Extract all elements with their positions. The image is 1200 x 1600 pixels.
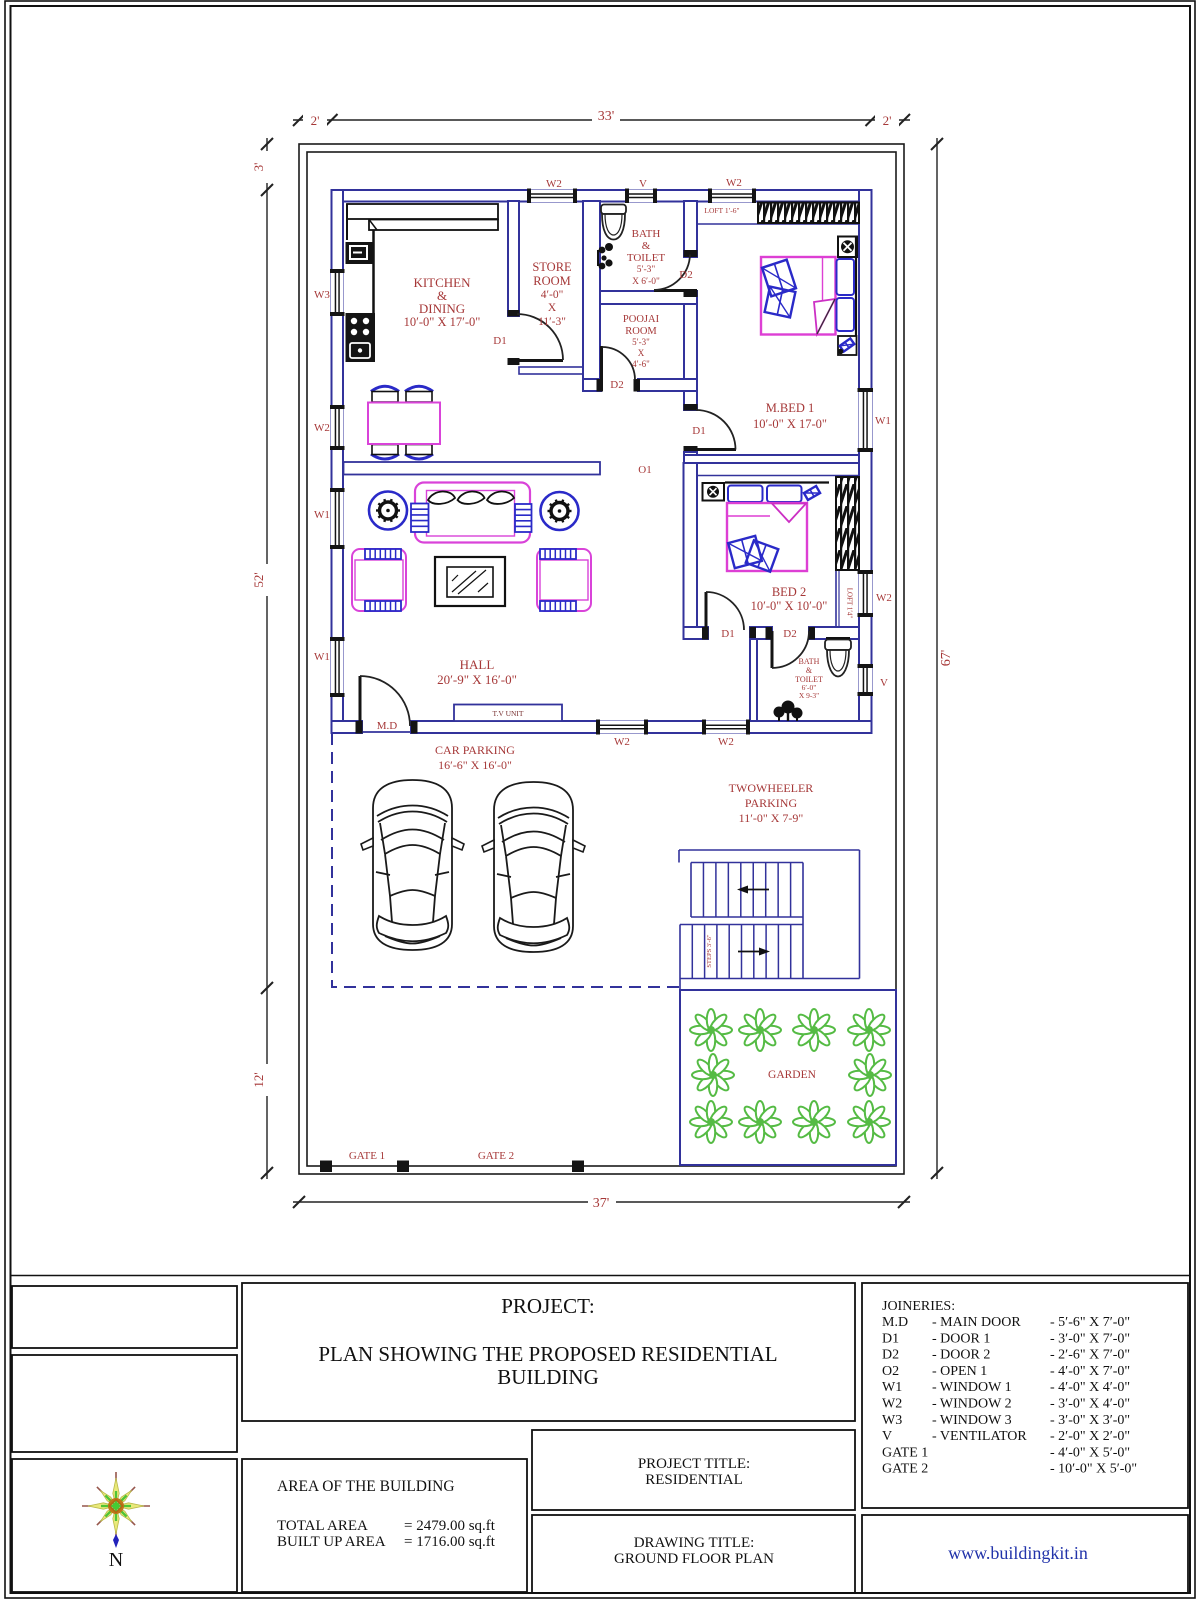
svg-text:16′-6" X 16′-0": 16′-6" X 16′-0": [438, 758, 512, 772]
svg-text:D2: D2: [679, 269, 692, 281]
svg-text:D1: D1: [493, 335, 506, 347]
svg-text:PLAN SHOWING THE PROPOSED RESI: PLAN SHOWING THE PROPOSED RESIDENTIAL: [318, 1342, 777, 1366]
svg-text:X 6′-0": X 6′-0": [632, 277, 660, 287]
svg-text:GATE 1: GATE 1: [349, 1150, 385, 1162]
svg-text:3': 3': [251, 163, 266, 172]
svg-text:D1: D1: [692, 425, 705, 437]
svg-text:= 1716.00 sq.ft: = 1716.00 sq.ft: [404, 1534, 496, 1550]
svg-text:- 3′-0" X 3′-0": - 3′-0" X 3′-0": [1050, 1413, 1130, 1428]
svg-text:ROOM: ROOM: [533, 274, 571, 288]
svg-text:- 5′-6" X 7′-0": - 5′-6" X 7′-0": [1050, 1315, 1130, 1330]
svg-text:W2: W2: [718, 736, 734, 748]
svg-text:GATE 2: GATE 2: [478, 1150, 514, 1162]
svg-text:W2: W2: [314, 422, 330, 434]
svg-text:LOFT 1′4": LOFT 1′4": [846, 588, 854, 619]
svg-text:PARKING: PARKING: [745, 796, 798, 810]
svg-text:- DOOR 2: - DOOR 2: [932, 1348, 990, 1363]
svg-text:- MAIN DOOR: - MAIN DOOR: [932, 1315, 1021, 1330]
svg-text:M.D: M.D: [377, 720, 398, 732]
svg-text:- WINDOW 3: - WINDOW 3: [932, 1413, 1012, 1428]
svg-text:BUILT UP AREA: BUILT UP AREA: [277, 1534, 386, 1550]
svg-text:- 2′-6" X 7′-0": - 2′-6" X 7′-0": [1050, 1348, 1130, 1363]
svg-text:W2: W2: [726, 177, 742, 189]
svg-text:&: &: [806, 666, 813, 675]
svg-text:W2: W2: [614, 736, 630, 748]
svg-text:11′-3": 11′-3": [538, 316, 566, 328]
svg-text:T.V UNIT: T.V UNIT: [493, 709, 524, 718]
svg-text:X 9-3": X 9-3": [799, 691, 819, 700]
svg-text:CAR PARKING: CAR PARKING: [435, 743, 515, 757]
svg-text:GROUND FLOOR PLAN: GROUND FLOOR PLAN: [614, 1551, 774, 1567]
svg-text:GATE 1: GATE 1: [882, 1445, 928, 1460]
svg-text:N: N: [109, 1549, 123, 1571]
svg-text:11′-0" X 7-9": 11′-0" X 7-9": [739, 811, 804, 825]
svg-text:W2: W2: [546, 178, 562, 190]
svg-text:- DOOR 1: - DOOR 1: [932, 1331, 990, 1346]
svg-text:W2: W2: [882, 1397, 902, 1412]
svg-text:GATE 2: GATE 2: [882, 1462, 928, 1477]
svg-text:&: &: [642, 240, 651, 252]
svg-text:- WINDOW 2: - WINDOW 2: [932, 1397, 1012, 1412]
svg-text:RESIDENTIAL: RESIDENTIAL: [645, 1472, 743, 1488]
svg-text:DINING: DINING: [419, 301, 465, 316]
svg-text:AREA OF THE BUILDING: AREA OF THE BUILDING: [277, 1478, 455, 1495]
svg-text:W1: W1: [314, 509, 330, 521]
svg-text:V: V: [880, 677, 888, 689]
svg-text:12': 12': [251, 1072, 266, 1087]
svg-text:- 3′-0" X 7′-0": - 3′-0" X 7′-0": [1050, 1331, 1130, 1346]
svg-text:TWOWHEELER: TWOWHEELER: [729, 781, 814, 795]
svg-text:67': 67': [939, 650, 954, 667]
svg-text:ROOM: ROOM: [625, 326, 657, 337]
svg-text:- 10′-0" X 5′-0": - 10′-0" X 5′-0": [1050, 1462, 1137, 1477]
svg-text:2': 2': [883, 113, 892, 128]
svg-text:PROJECT:: PROJECT:: [501, 1294, 594, 1318]
svg-text:10′-0" X 17′-0": 10′-0" X 17′-0": [404, 315, 481, 329]
svg-text:5′-3": 5′-3": [632, 337, 650, 347]
svg-text:BATH: BATH: [799, 657, 820, 666]
svg-text:D1: D1: [882, 1331, 899, 1346]
svg-text:O1: O1: [638, 464, 651, 476]
svg-text:4′-6": 4′-6": [632, 359, 650, 369]
svg-text:10′-0" X 17-0": 10′-0" X 17-0": [753, 417, 827, 431]
svg-text:X: X: [638, 348, 645, 358]
svg-text:20′-9" X 16′-0": 20′-9" X 16′-0": [437, 672, 517, 687]
svg-text:W1: W1: [882, 1380, 902, 1395]
svg-text:D2: D2: [610, 379, 623, 391]
svg-text:GARDEN: GARDEN: [768, 1069, 817, 1081]
svg-text:M.BED 1: M.BED 1: [766, 401, 815, 415]
svg-text:POOJAI: POOJAI: [623, 314, 660, 325]
svg-text:V: V: [882, 1429, 892, 1444]
svg-text:W1: W1: [314, 651, 330, 663]
svg-text:- 2′-0" X 2′-0": - 2′-0" X 2′-0": [1050, 1429, 1130, 1444]
svg-text:5′-3": 5′-3": [637, 265, 656, 275]
svg-text:- WINDOW 1: - WINDOW 1: [932, 1380, 1012, 1395]
svg-text:TOTAL AREA: TOTAL AREA: [277, 1518, 368, 1534]
svg-text:37': 37': [593, 1196, 610, 1211]
svg-text:52': 52': [251, 572, 266, 587]
svg-text:BUILDING: BUILDING: [497, 1365, 598, 1389]
svg-text:4′-0": 4′-0": [541, 289, 564, 301]
svg-text:JOINERIES:: JOINERIES:: [882, 1299, 955, 1314]
svg-text:D2: D2: [783, 628, 796, 640]
svg-text:STEPS 3′-6": STEPS 3′-6": [706, 934, 713, 967]
svg-text:- 4′-0" X 4′-0": - 4′-0" X 4′-0": [1050, 1380, 1130, 1395]
svg-text:33': 33': [598, 109, 615, 124]
svg-text:- 3′-0" X 4′-0": - 3′-0" X 4′-0": [1050, 1397, 1130, 1412]
svg-text:D2: D2: [882, 1348, 899, 1363]
svg-text:M.D: M.D: [882, 1315, 908, 1330]
svg-text:= 2479.00 sq.ft: = 2479.00 sq.ft: [404, 1518, 496, 1534]
svg-text:PROJECT TITLE:: PROJECT TITLE:: [638, 1456, 750, 1472]
svg-text:LOFT 1′-6": LOFT 1′-6": [704, 206, 739, 215]
svg-text:W1: W1: [875, 415, 891, 427]
svg-text:2': 2': [311, 113, 320, 128]
svg-text:BATH: BATH: [632, 228, 661, 240]
svg-text:10′-0" X 10′-0": 10′-0" X 10′-0": [751, 599, 828, 613]
svg-text:V: V: [639, 178, 647, 190]
svg-text:HALL: HALL: [460, 657, 495, 672]
svg-text:BED 2: BED 2: [772, 585, 806, 599]
svg-text:TOILET: TOILET: [627, 252, 666, 264]
svg-text:- VENTILATOR: - VENTILATOR: [932, 1429, 1027, 1444]
svg-text:W2: W2: [876, 592, 892, 604]
svg-text:D1: D1: [721, 628, 734, 640]
svg-text:- OPEN 1: - OPEN 1: [932, 1364, 987, 1379]
svg-text:W3: W3: [314, 289, 330, 301]
svg-text:- 4′-0" X 5′-0": - 4′-0" X 5′-0": [1050, 1445, 1130, 1460]
svg-text:DRAWING TITLE:: DRAWING TITLE:: [634, 1535, 755, 1551]
svg-text:W3: W3: [882, 1413, 902, 1428]
svg-text:X: X: [548, 302, 557, 314]
svg-text:www.buildingkit.in: www.buildingkit.in: [948, 1543, 1088, 1563]
svg-text:- 4′-0" X 7′-0": - 4′-0" X 7′-0": [1050, 1364, 1130, 1379]
svg-text:O2: O2: [882, 1364, 899, 1379]
svg-text:STORE: STORE: [532, 260, 572, 274]
